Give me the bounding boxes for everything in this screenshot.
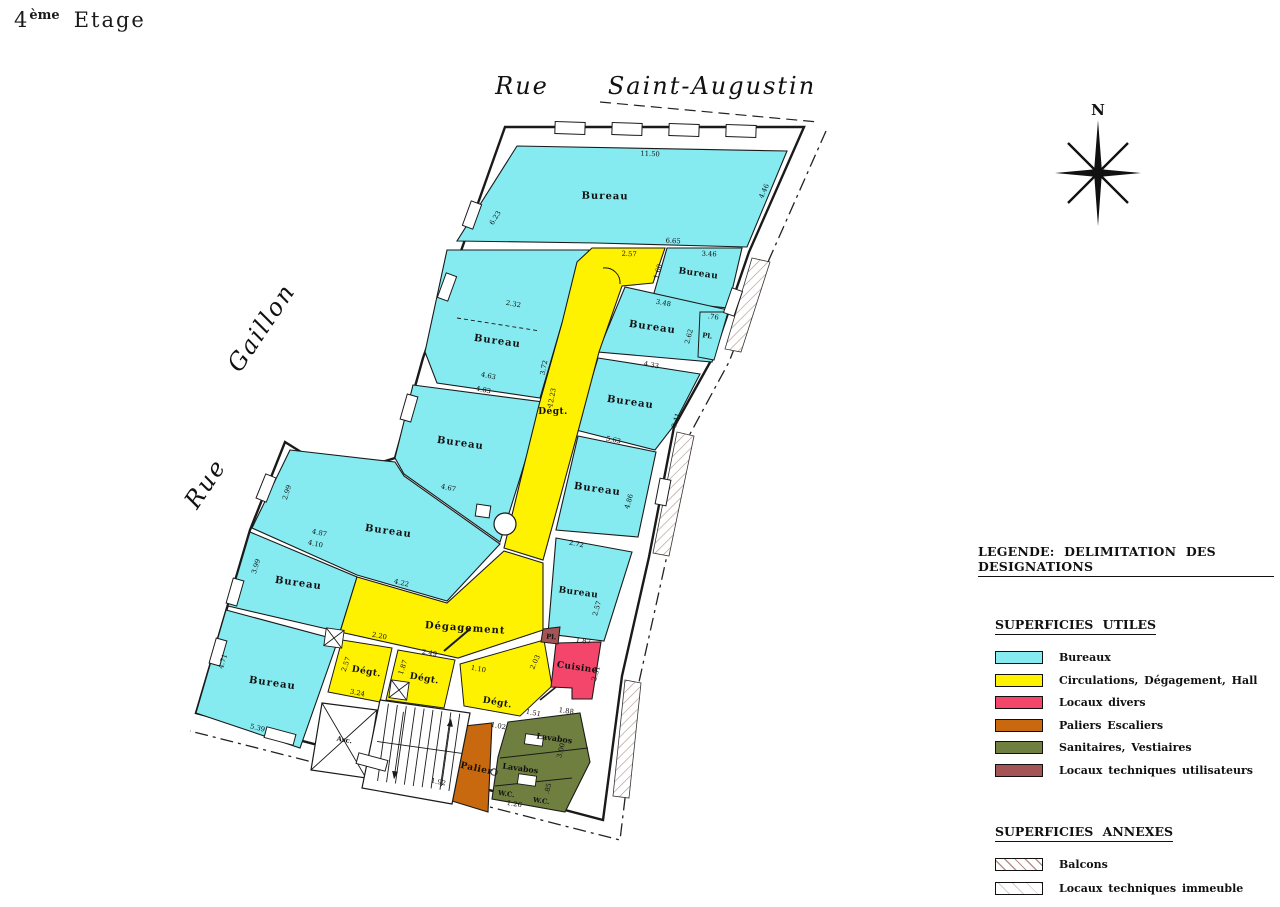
- legend-swatch-circulations: [995, 674, 1043, 687]
- page-title: 4èmeEtage: [14, 8, 146, 32]
- dim-label: 11.50: [640, 150, 660, 159]
- dim-label: 3.46: [701, 250, 717, 259]
- floor-ordinal-suffix: ème: [29, 8, 59, 23]
- floor-word: Etage: [74, 8, 146, 32]
- street-label-rue-left: Rue: [178, 453, 232, 514]
- legend-row: Balcons: [995, 858, 1274, 871]
- legend-heading-utiles: SUPERFICIES UTILES: [995, 617, 1156, 635]
- room-label: Bureau: [581, 191, 628, 203]
- legend-row: Bureaux: [995, 651, 1274, 664]
- legend-row: Locaux techniques immeuble: [995, 882, 1274, 895]
- legend-swatch-locaux-techniques: [995, 764, 1043, 777]
- legend-label: Locaux techniques utilisateurs: [1059, 764, 1253, 777]
- room-label: Pl.: [546, 633, 557, 642]
- north-label: N: [1091, 101, 1105, 119]
- column: [494, 513, 516, 535]
- legend-section-annexes: SUPERFICIES ANNEXES Balcons Locaux techn…: [995, 821, 1274, 895]
- legend-swatch-balcons: [995, 858, 1043, 871]
- legend-row: Locaux divers: [995, 696, 1274, 709]
- legend-heading-annexes: SUPERFICIES ANNEXES: [995, 824, 1173, 842]
- legend: LEGENDE: DELIMITATION DES DESIGNATIONS S…: [978, 544, 1274, 906]
- dim-label: 6.65: [665, 237, 681, 246]
- floor-plan-page: 4èmeEtage Rue Saint-Augustin Gaillon Rue: [0, 0, 1280, 907]
- dim-label: .76: [707, 312, 719, 321]
- legend-title: LEGENDE: DELIMITATION DES DESIGNATIONS: [978, 544, 1274, 577]
- shaft-x-box: [324, 628, 344, 648]
- dim-label: 1.26: [506, 799, 522, 809]
- legend-label: Paliers Escaliers: [1059, 719, 1163, 732]
- duct-box: [475, 504, 491, 518]
- street-label-gaillon: Gaillon: [222, 278, 301, 377]
- legend-label: Sanitaires, Vestiaires: [1059, 741, 1192, 754]
- legend-label: Circulations, Dégagement, Hall: [1059, 674, 1257, 687]
- legend-row: Sanitaires, Vestiaires: [995, 741, 1274, 754]
- floor-number: 4: [14, 8, 29, 32]
- legend-section-utiles: SUPERFICIES UTILES Bureaux Circulations,…: [995, 614, 1274, 777]
- street-label-rue-top: Rue: [494, 72, 549, 100]
- legend-label: Locaux techniques immeuble: [1059, 882, 1243, 895]
- room-label: Pl.: [702, 331, 713, 340]
- legend-swatch-locaux-immeuble: [995, 882, 1043, 895]
- legend-row: Paliers Escaliers: [995, 719, 1274, 732]
- legend-swatch-paliers: [995, 719, 1043, 732]
- legend-label: Locaux divers: [1059, 696, 1146, 709]
- door-gap: [517, 774, 536, 786]
- shaft-x-box: [389, 680, 409, 700]
- north-arrow: N: [1055, 101, 1141, 226]
- legend-swatch-bureaux: [995, 651, 1043, 664]
- legend-swatch-locaux-divers: [995, 696, 1043, 709]
- legend-label: Bureaux: [1059, 651, 1111, 664]
- street-label-saint-augustin: Saint-Augustin: [608, 72, 816, 100]
- street-boundary-dashed-line: [600, 102, 818, 122]
- legend-swatch-sanitaires: [995, 741, 1043, 754]
- dim-label: 2.57: [621, 250, 637, 259]
- legend-label: Balcons: [1059, 858, 1108, 871]
- legend-row: Circulations, Dégagement, Hall: [995, 674, 1274, 687]
- legend-row: Locaux techniques utilisateurs: [995, 764, 1274, 777]
